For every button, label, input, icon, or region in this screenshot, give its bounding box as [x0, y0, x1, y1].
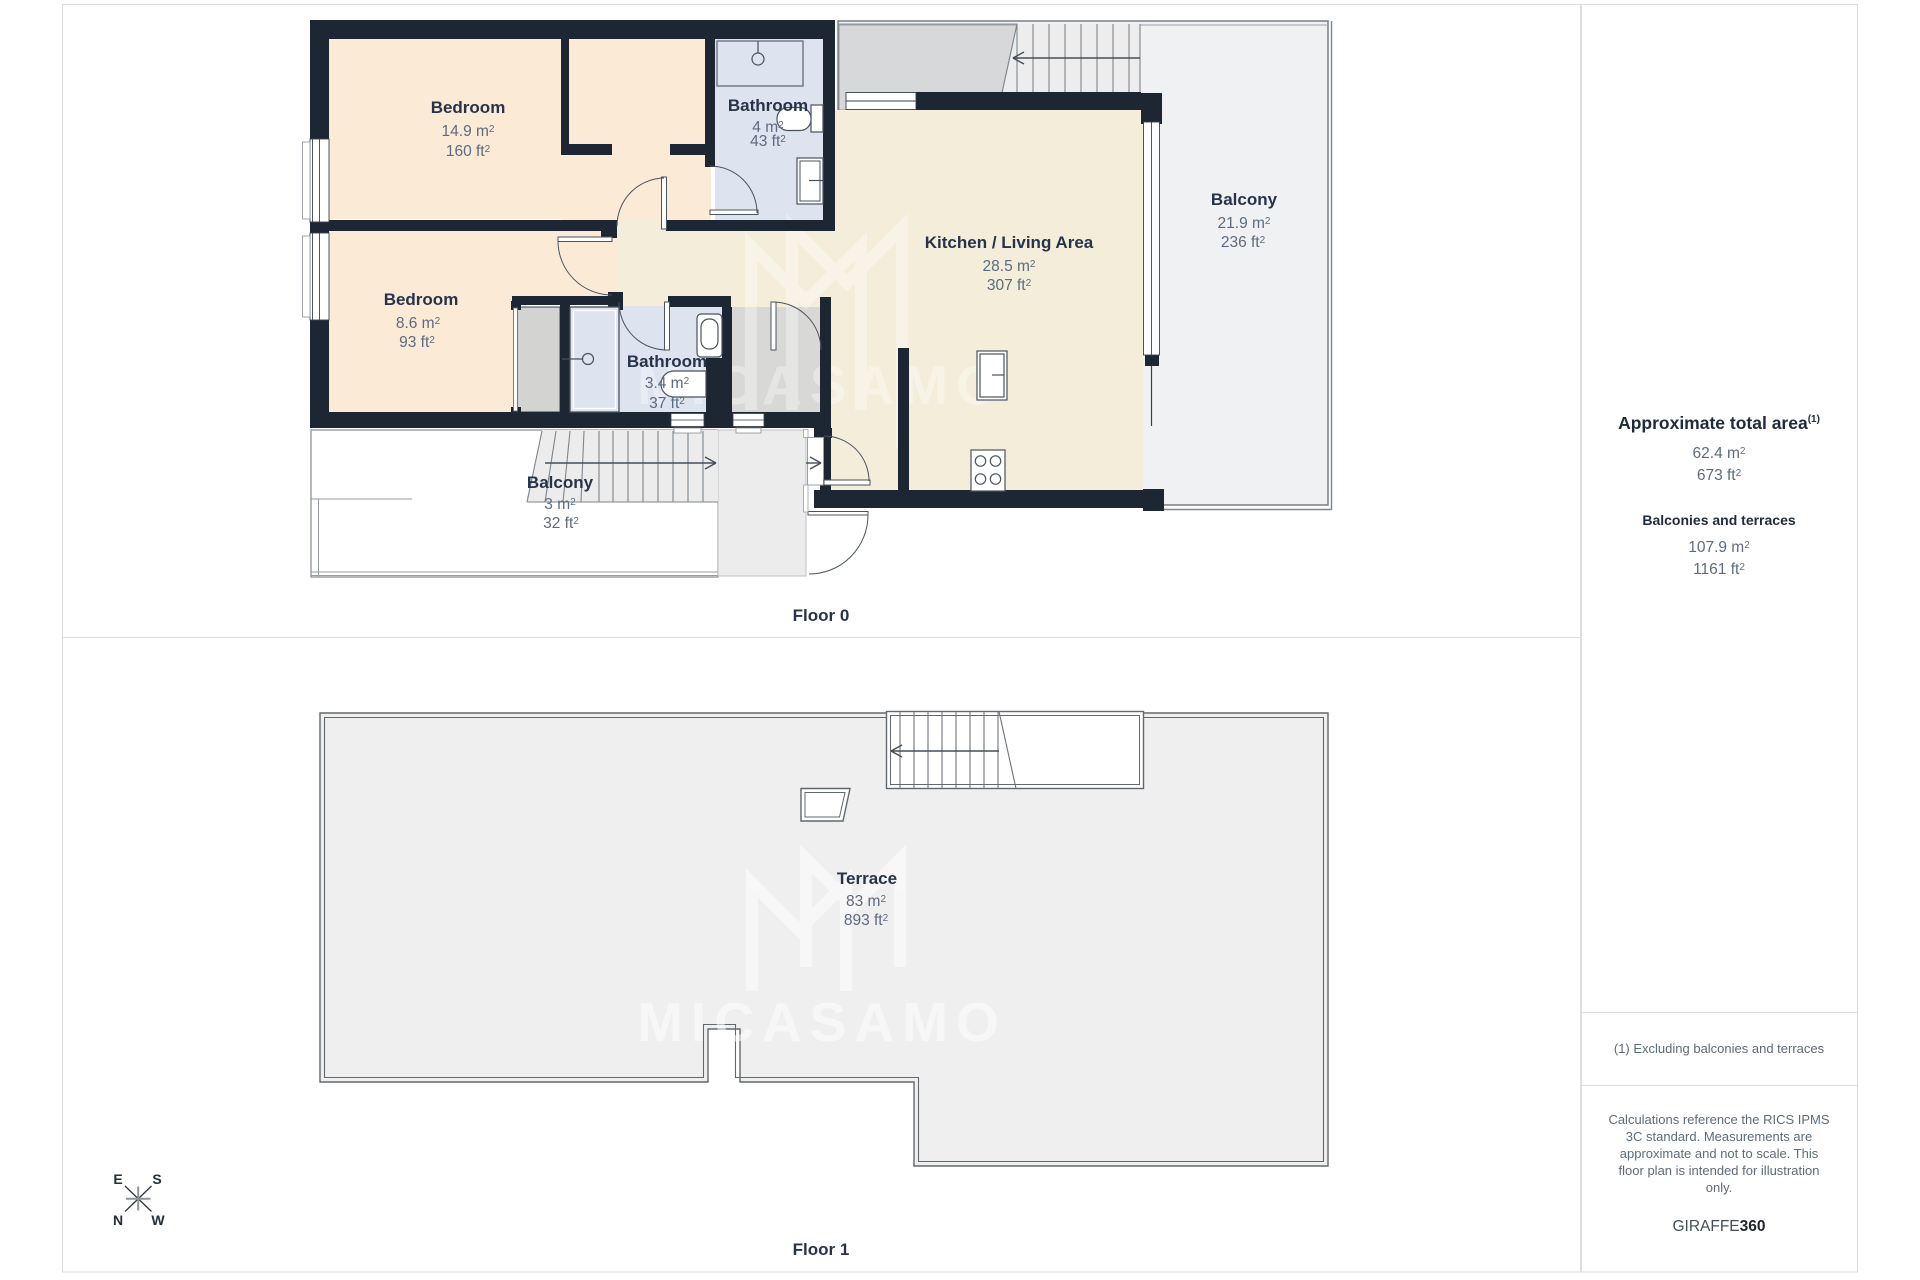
- svg-text:28.5 m2: 28.5 m2: [983, 258, 1036, 275]
- svg-text:approximate and not to scale.: approximate and not to scale. This: [1620, 1146, 1819, 1161]
- svg-text:Terrace: Terrace: [837, 869, 897, 888]
- svg-text:E: E: [113, 1171, 122, 1187]
- svg-text:3C standard. Measurements are: 3C standard. Measurements are: [1626, 1129, 1812, 1144]
- svg-text:Bathroom: Bathroom: [627, 352, 707, 371]
- svg-text:S: S: [152, 1171, 161, 1187]
- svg-text:MICASAMO: MICASAMO: [637, 991, 1007, 1053]
- svg-text:Kitchen / Living Area: Kitchen / Living Area: [925, 233, 1094, 252]
- svg-text:893 ft2: 893 ft2: [844, 912, 889, 929]
- svg-text:107.9 m2: 107.9 m2: [1688, 539, 1750, 556]
- svg-text:Balconies and terraces: Balconies and terraces: [1642, 512, 1796, 528]
- svg-text:Bedroom: Bedroom: [431, 98, 506, 117]
- svg-text:307 ft2: 307 ft2: [987, 277, 1032, 294]
- svg-text:W: W: [151, 1212, 165, 1228]
- svg-text:Floor 1: Floor 1: [793, 1240, 850, 1259]
- svg-text:236 ft2: 236 ft2: [1221, 234, 1266, 251]
- svg-text:1161 ft2: 1161 ft2: [1693, 561, 1745, 578]
- svg-text:3.4 m2: 3.4 m2: [645, 375, 690, 392]
- svg-text:Bedroom: Bedroom: [384, 290, 459, 309]
- svg-text:floor plan is intended for ill: floor plan is intended for illustration: [1619, 1163, 1820, 1178]
- svg-text:GIRAFFE360: GIRAFFE360: [1672, 1218, 1765, 1235]
- svg-text:21.9 m2: 21.9 m2: [1218, 215, 1271, 232]
- svg-text:N: N: [113, 1212, 123, 1228]
- svg-text:14.9 m2: 14.9 m2: [442, 123, 495, 140]
- svg-text:160 ft2: 160 ft2: [446, 143, 491, 160]
- svg-text:Balcony: Balcony: [527, 473, 594, 492]
- svg-text:Calculations reference the RIC: Calculations reference the RICS IPMS: [1608, 1112, 1829, 1127]
- svg-text:8.6 m2: 8.6 m2: [396, 315, 441, 332]
- svg-text:Floor 0: Floor 0: [793, 606, 850, 625]
- svg-text:only.: only.: [1706, 1180, 1733, 1195]
- svg-text:Bathroom: Bathroom: [728, 96, 808, 115]
- svg-text:83 m2: 83 m2: [846, 893, 886, 910]
- svg-text:(1) Excluding balconies and te: (1) Excluding balconies and terraces: [1614, 1041, 1825, 1056]
- svg-text:62.4 m2: 62.4 m2: [1693, 445, 1746, 462]
- svg-text:Approximate total area(1): Approximate total area(1): [1618, 413, 1820, 433]
- svg-text:Balcony: Balcony: [1211, 190, 1278, 209]
- svg-text:673 ft2: 673 ft2: [1697, 467, 1742, 484]
